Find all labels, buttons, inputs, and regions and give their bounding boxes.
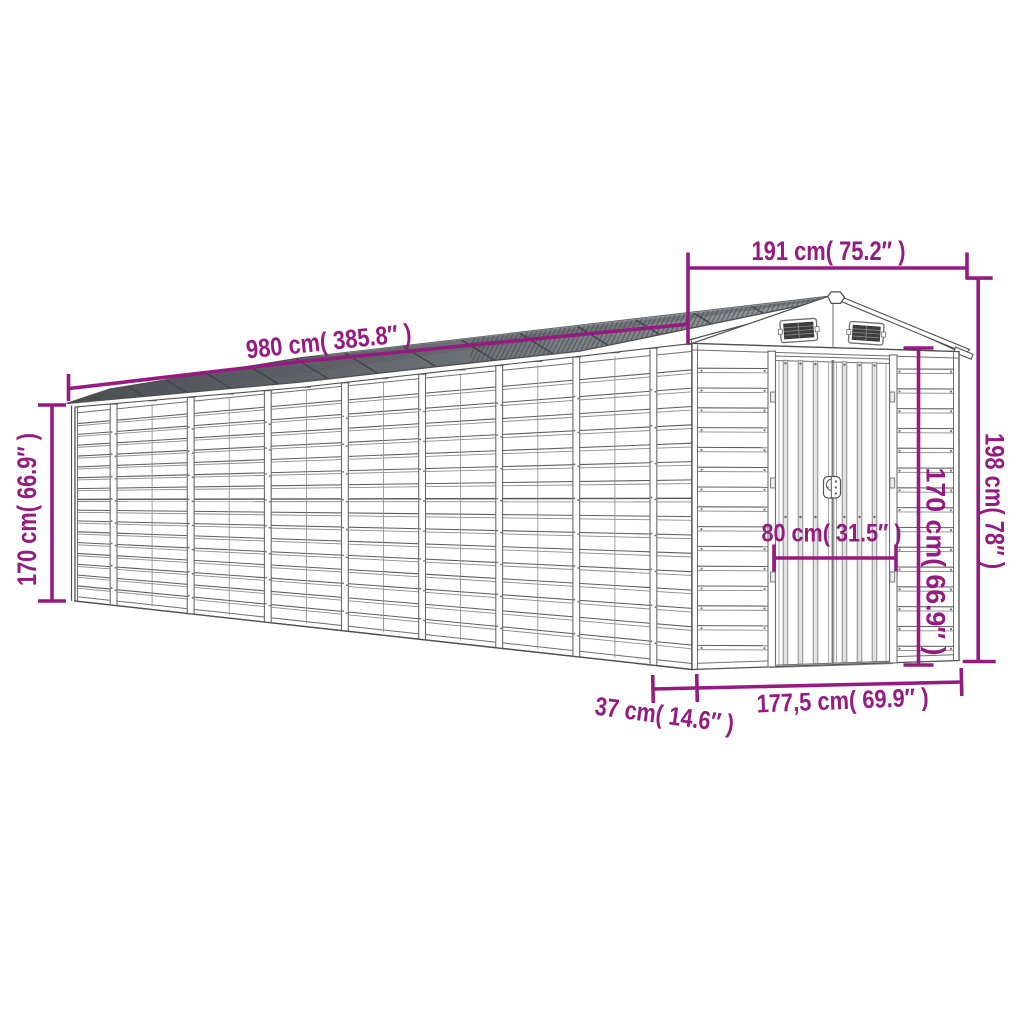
- svg-text:170 cm( 66.9″ ): 170 cm( 66.9″ ): [12, 433, 42, 586]
- svg-text:198 cm( 78″ ): 198 cm( 78″ ): [980, 433, 1010, 569]
- svg-text:170 cm( 66.9″ ): 170 cm( 66.9″ ): [921, 468, 951, 656]
- svg-text:80 cm( 31.5″ ): 80 cm( 31.5″ ): [762, 520, 902, 548]
- svg-text:191 cm( 75.2″ ): 191 cm( 75.2″ ): [752, 236, 906, 266]
